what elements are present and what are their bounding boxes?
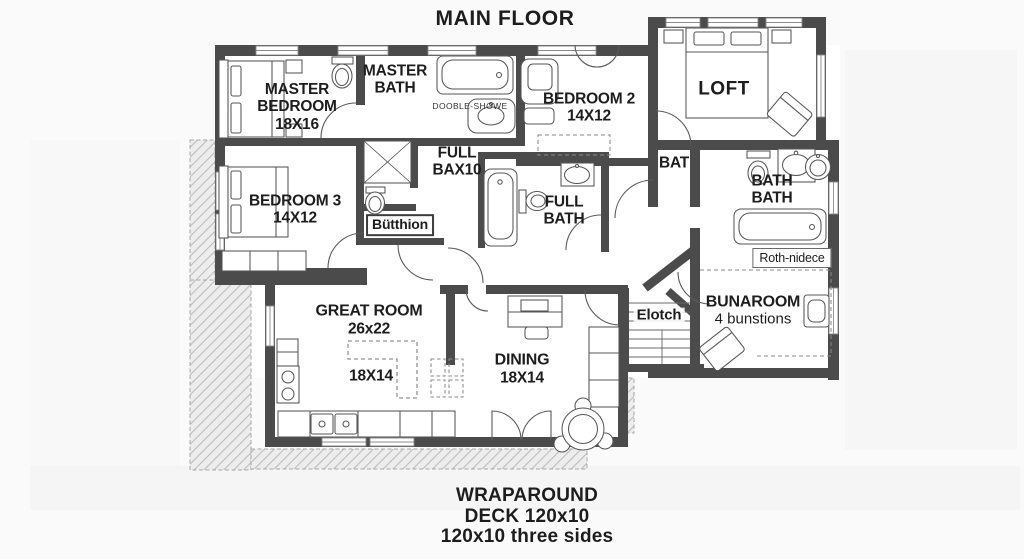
floorplan-drawing: [0, 0, 1024, 559]
kitchen-counter-icon: [278, 411, 455, 437]
room-label-master-bedroom: MASTER BEDROOM18X16: [249, 81, 345, 133]
shower-note-label: DOOBLE-SHOWE: [432, 102, 507, 112]
stairs-label: Elotch: [634, 308, 685, 325]
stove-icon: [277, 339, 299, 403]
dining-sofa-icon: [589, 327, 619, 407]
room-label-great-room: GREAT ROOM 26x22: [315, 302, 422, 337]
room-label-loft: LOFT: [698, 78, 750, 99]
deck-caption: WRAPAROUND DECK 120x10 120x10 three side…: [441, 486, 614, 548]
fullbath-sink-icon: [561, 163, 594, 186]
closet-label-birthion: Bütthion: [366, 214, 434, 236]
plan-title: MAIN FLOOR: [436, 7, 575, 31]
closet-label-roth: Roth-nidece: [752, 248, 831, 268]
room-label-full-bax: FULL BAX10: [427, 145, 487, 180]
room-label-bedroom3: BEDROOM 314X12: [249, 193, 341, 228]
room-label-dining: DINING 18X14: [495, 351, 550, 386]
room-label-full-bath: FULL BATH: [535, 194, 593, 229]
bathbath-tub-icon: [734, 209, 826, 244]
toilet-icon: [366, 187, 386, 214]
room-label-bath-bath: BATH BATH: [743, 173, 801, 208]
floorplan-canvas: MAIN FLOOR MASTER BEDROOM18X16 MASTER BA…: [0, 0, 1024, 559]
master-tub-icon: [437, 56, 513, 94]
room-label-bedroom2: BEDROOM 214X12: [543, 91, 635, 126]
bunaroom-sink-icon: [804, 295, 829, 327]
island-size-label: 18X14: [349, 367, 393, 384]
room-label-master-bath: MASTER BATH: [353, 63, 437, 98]
bathbath-round-sink-icon: [806, 155, 831, 180]
room-label-bunaroom: BUNAROOM 4 bunstions: [706, 294, 800, 329]
fullbath-tub-icon: [484, 169, 517, 246]
shower-icon: [364, 141, 411, 183]
room-label-bat: BAT: [659, 154, 689, 171]
